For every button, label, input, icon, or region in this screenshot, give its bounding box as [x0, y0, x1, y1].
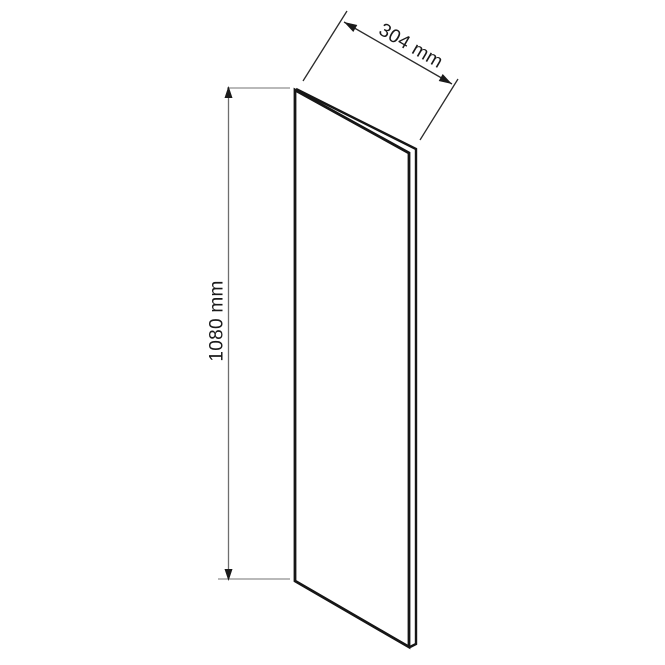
- height-dimension-label: 1080 mm: [207, 280, 228, 361]
- arrowhead-up-left-icon: [344, 22, 357, 32]
- height-dimension: 1080 mm: [207, 86, 291, 581]
- arrowhead-down-right-icon: [439, 74, 452, 84]
- diagram-canvas: 1080 mm 304 mm: [0, 0, 665, 665]
- width-extension-line-left: [303, 11, 347, 81]
- panel-dimension-diagram: 1080 mm 304 mm: [0, 0, 665, 665]
- panel-front-face: [295, 90, 409, 647]
- width-extension-line-right: [420, 79, 458, 140]
